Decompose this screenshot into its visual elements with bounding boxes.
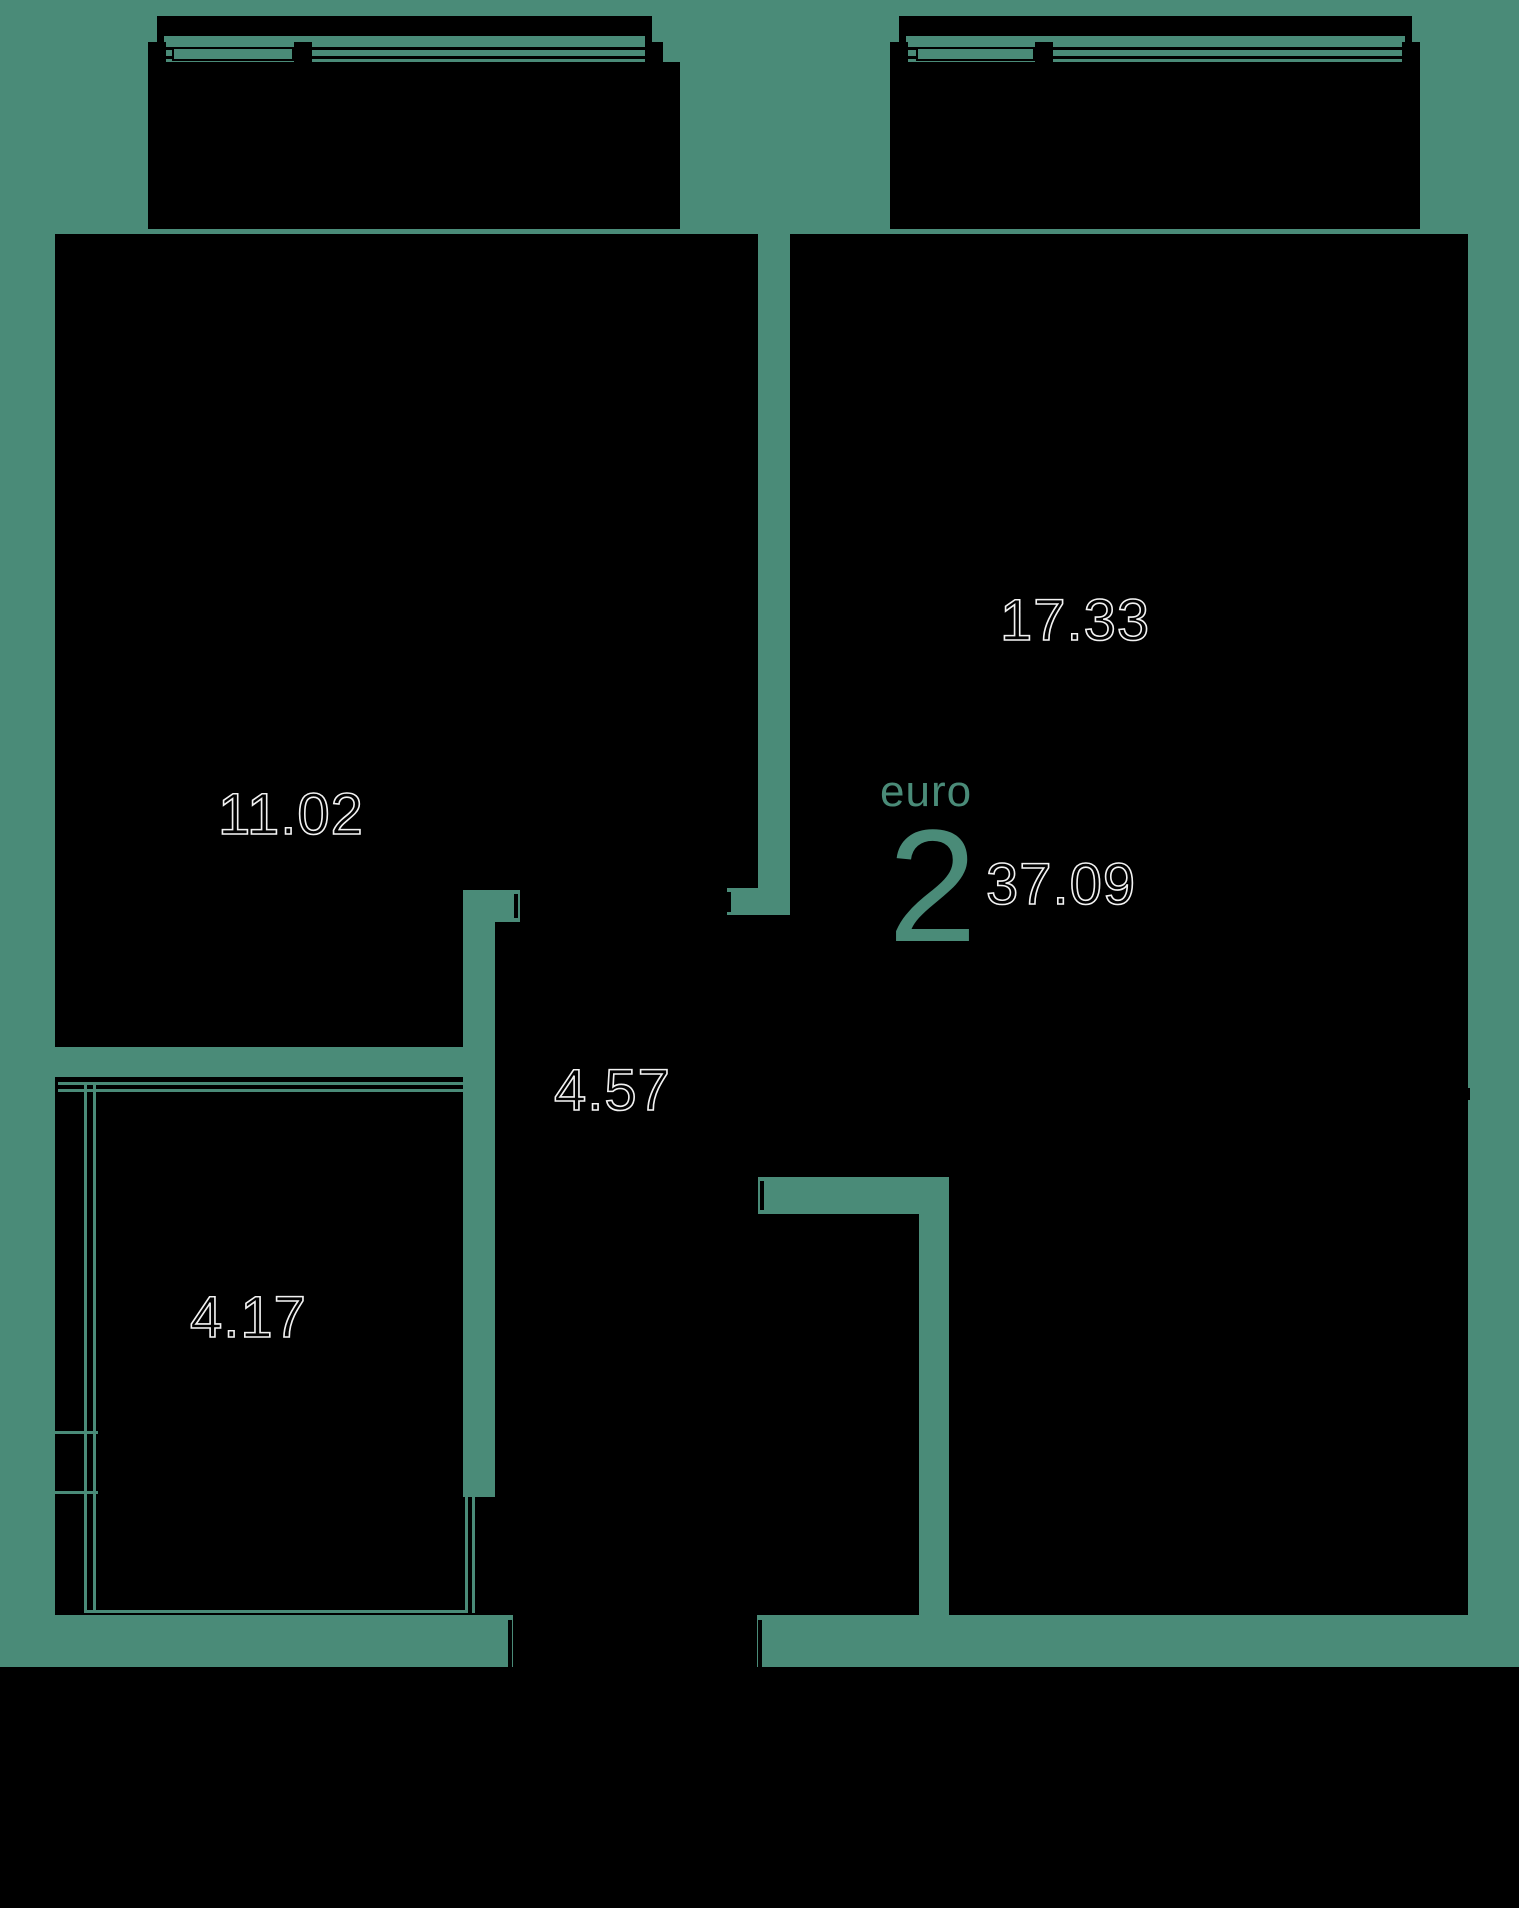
right-wall-tick bbox=[1464, 1088, 1470, 1100]
window-mullion bbox=[294, 42, 312, 62]
door-jamb-living bbox=[760, 1181, 764, 1210]
bathroom-left-tick bbox=[55, 1431, 98, 1434]
wall-bedroom-bathroom bbox=[55, 1047, 467, 1077]
bathroom-inner-line-left bbox=[93, 1082, 96, 1613]
wall-living-lower-leg bbox=[919, 1214, 949, 1615]
label-living-area: 17.33 bbox=[1000, 592, 1150, 650]
wall-between-rooms-foot bbox=[727, 888, 790, 915]
door-jamb-entrance bbox=[758, 1620, 762, 1667]
label-hallway-area: 4.57 bbox=[554, 1062, 671, 1120]
door-jamb-entrance bbox=[508, 1620, 512, 1667]
bathroom-door-line bbox=[472, 1494, 475, 1613]
floor-plan-canvas: 17.33 11.02 4.57 4.17 euro 2 37.09 bbox=[0, 0, 1519, 1908]
bathroom-inner-line-top bbox=[58, 1089, 468, 1092]
wall-hallway-left bbox=[463, 890, 495, 1497]
outside-band bbox=[0, 1667, 1519, 1908]
bathroom-inner-line-bottom bbox=[84, 1610, 468, 1613]
window-mullion bbox=[645, 42, 663, 64]
bathroom-inner-line-top bbox=[58, 1082, 468, 1085]
window-mullion bbox=[1035, 42, 1053, 62]
window-mullion bbox=[890, 42, 908, 64]
bathroom-inner-line-left bbox=[84, 1082, 87, 1613]
bay-right-fill bbox=[890, 62, 1420, 229]
window-sash-left bbox=[172, 47, 294, 61]
wall-hallway-left-stub bbox=[463, 890, 520, 922]
bathroom-left-tick bbox=[55, 1491, 98, 1494]
door-jamb-bedroom bbox=[514, 894, 518, 918]
entrance-door-opening bbox=[513, 1615, 757, 1667]
label-bedroom-area: 11.02 bbox=[218, 786, 364, 844]
window-rail-left bbox=[157, 16, 652, 36]
window-rail-right bbox=[899, 16, 1412, 36]
label-unit-rooms-count: 2 bbox=[888, 806, 977, 966]
bathroom-door-line bbox=[465, 1494, 468, 1613]
window-mullion bbox=[1402, 42, 1420, 64]
window-mullion bbox=[148, 42, 166, 64]
wall-living-lower-horizontal bbox=[758, 1177, 949, 1214]
bay-left-fill bbox=[148, 62, 680, 229]
label-unit-total-area: 37.09 bbox=[986, 856, 1136, 914]
window-sash-right bbox=[916, 47, 1035, 61]
label-bathroom-area: 4.17 bbox=[190, 1289, 307, 1347]
door-jamb-bedroom bbox=[727, 892, 731, 912]
wall-between-rooms bbox=[758, 234, 790, 915]
